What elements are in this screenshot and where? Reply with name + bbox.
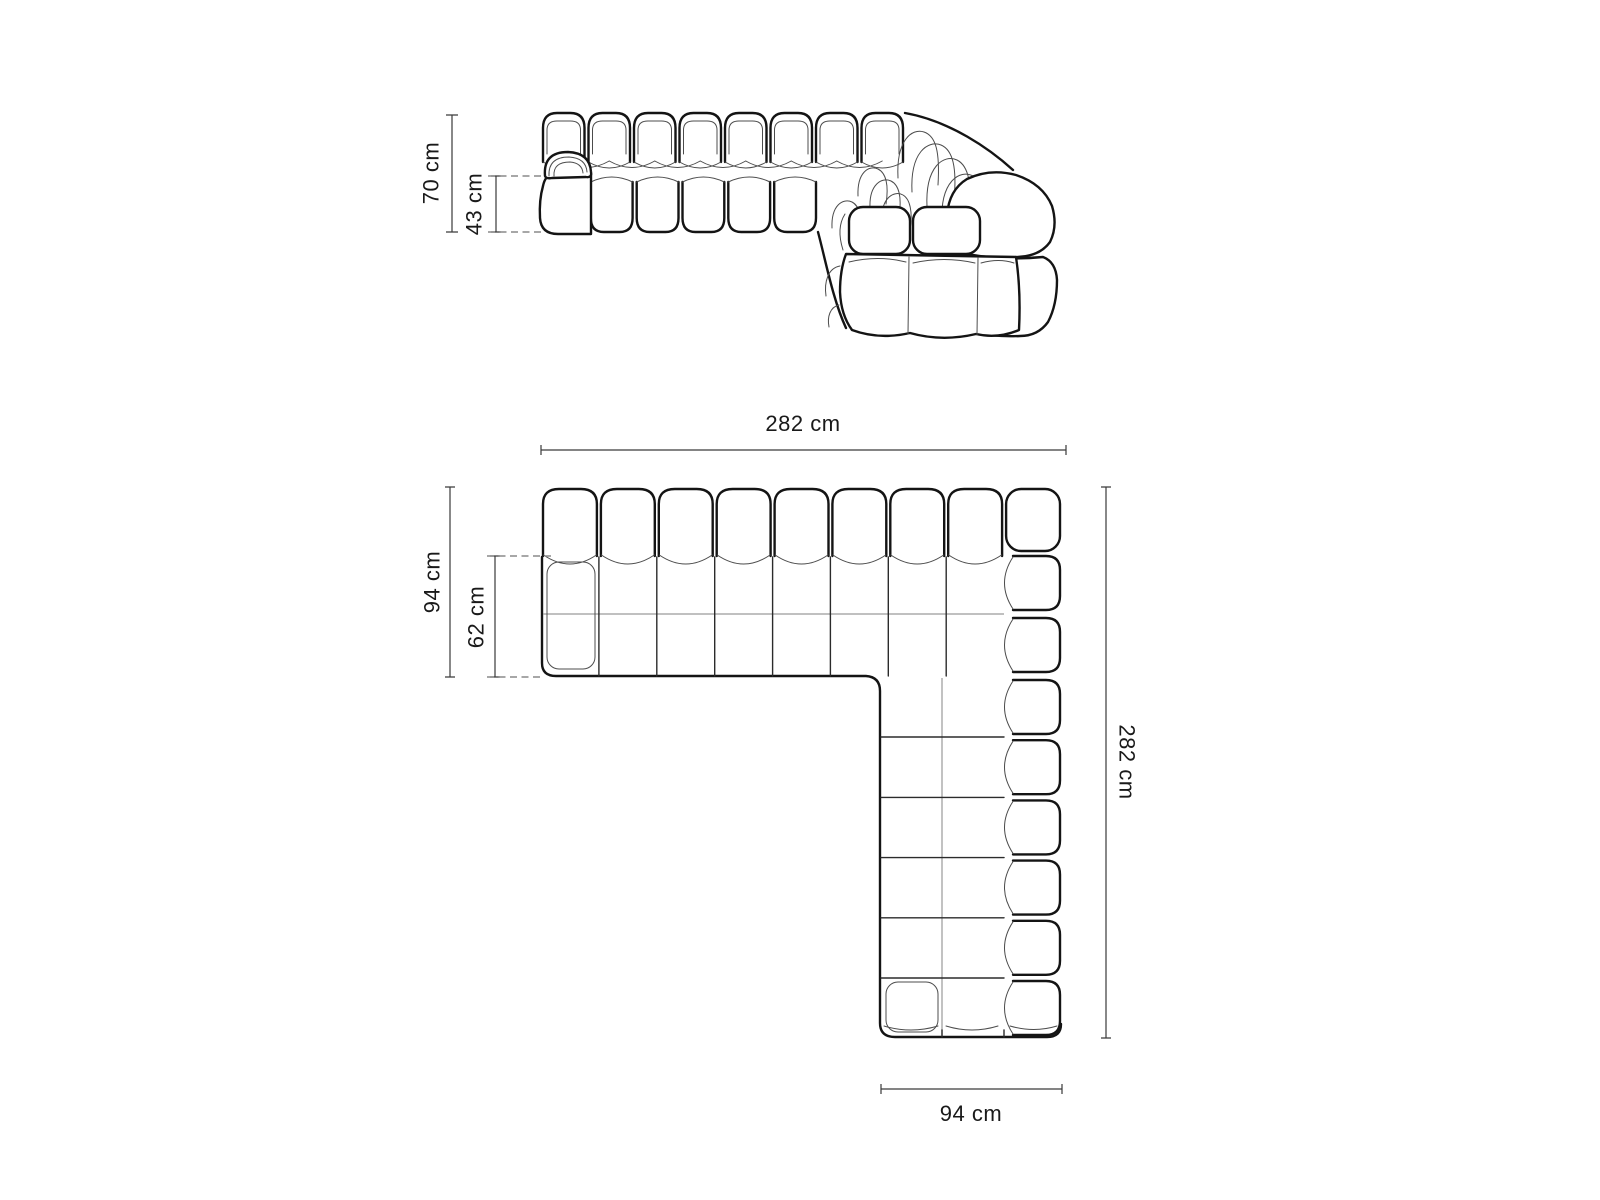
plan-side-cushion bbox=[1005, 740, 1061, 794]
front-elevation-view: 70 cm 43 cm bbox=[419, 113, 1057, 338]
plan-side-cushion bbox=[1005, 861, 1061, 915]
back-cushion bbox=[589, 113, 631, 168]
back-cushion bbox=[680, 113, 722, 168]
plan-side-cushion bbox=[1005, 618, 1061, 672]
dimension-seat-height: 43 cm bbox=[462, 173, 545, 235]
dimension-total-height: 70 cm bbox=[419, 115, 458, 232]
plan-back-cushion bbox=[890, 489, 944, 564]
seat-cushion bbox=[728, 177, 770, 232]
total-height-label: 70 cm bbox=[419, 142, 444, 204]
seat-depth-label: 62 cm bbox=[464, 586, 489, 648]
back-cushion bbox=[771, 113, 813, 168]
back-cushion bbox=[816, 113, 858, 168]
plan-cushion-details bbox=[547, 562, 1057, 1037]
seat-cushion bbox=[591, 177, 633, 232]
dimension-total-length: 282 cm bbox=[1101, 487, 1139, 1038]
plan-side-cushion bbox=[1005, 556, 1061, 610]
seat-cushion bbox=[683, 177, 725, 232]
total-length-label: 282 cm bbox=[1114, 724, 1139, 799]
seat-cushion bbox=[637, 177, 679, 232]
chaise-back-cushion bbox=[849, 207, 910, 254]
seat-height-label: 43 cm bbox=[462, 173, 487, 235]
plan-side-cushion bbox=[1005, 921, 1061, 975]
dimension-total-width: 282 cm bbox=[541, 411, 1066, 455]
plan-seams bbox=[543, 557, 1004, 1035]
tufting-arcs bbox=[564, 161, 883, 168]
plan-side-cushion bbox=[1005, 800, 1061, 854]
chaise-seat bbox=[840, 254, 1020, 338]
left-armrest bbox=[540, 152, 591, 234]
backrest-cushions bbox=[543, 113, 903, 168]
plan-side-cushions bbox=[1005, 556, 1061, 1035]
plan-corner-cushion bbox=[1006, 489, 1060, 551]
top-plan-view: 282 cm 94 cm 62 cm 282 cm 94 cm bbox=[420, 411, 1140, 1126]
plan-back-cushions bbox=[543, 489, 1060, 564]
plan-back-cushion bbox=[659, 489, 713, 564]
total-width-label: 282 cm bbox=[765, 411, 840, 436]
chaise-width-label: 94 cm bbox=[940, 1101, 1002, 1126]
dimension-seat-depth: 62 cm bbox=[464, 556, 551, 677]
total-depth-label: 94 cm bbox=[420, 551, 445, 613]
plan-back-cushion bbox=[832, 489, 886, 564]
back-cushion bbox=[725, 113, 767, 168]
dimension-total-depth: 94 cm bbox=[420, 487, 455, 677]
diagram-canvas: 70 cm 43 cm bbox=[0, 0, 1600, 1200]
plan-back-cushion bbox=[775, 489, 829, 564]
plan-back-cushion bbox=[948, 489, 1002, 564]
chaise-back-cushion bbox=[913, 207, 980, 254]
seat-cushion bbox=[774, 177, 816, 232]
plan-side-cushion bbox=[1005, 680, 1061, 734]
plan-back-cushion bbox=[601, 489, 655, 564]
plan-back-cushion bbox=[717, 489, 771, 564]
dimension-chaise-width: 94 cm bbox=[881, 1084, 1062, 1126]
plan-back-cushion bbox=[543, 489, 597, 564]
back-cushion bbox=[634, 113, 676, 168]
back-cushion bbox=[862, 113, 904, 168]
sofa-dimension-diagram: 70 cm 43 cm bbox=[0, 0, 1600, 1200]
